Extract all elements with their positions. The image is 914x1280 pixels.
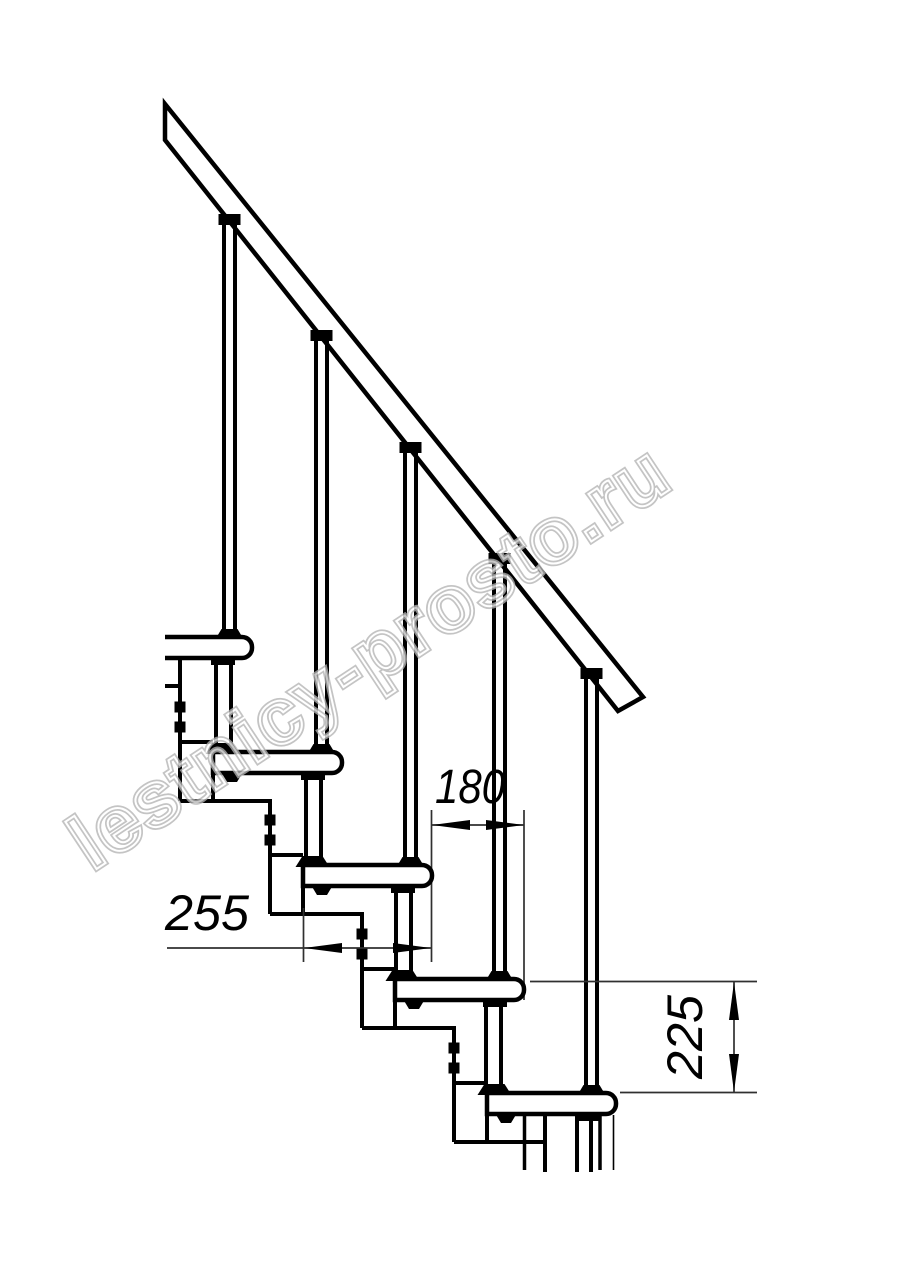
baluster-collar-1 [219,214,241,225]
tube-cap-1 [211,657,235,665]
bolt-2b [265,835,276,846]
bolt-4b [449,1063,460,1074]
bolt-4a [449,1043,460,1054]
bolt-3a [357,929,368,940]
tube-cap-4 [483,999,507,1007]
dimension-label-180: 180 [435,761,505,814]
tread-4 [395,979,524,1000]
staircase-technical-drawing: 180 255 225 lestnicy-prosto.ru lestnicy-… [0,0,914,1280]
tube-cap-3 [391,885,415,893]
tube-cap-2 [301,772,325,780]
baluster-collar-3 [400,442,422,453]
bolt-2a [265,815,276,826]
tread-1 [165,637,252,658]
tread-3 [303,865,432,886]
tube-cap-5 [575,1113,599,1121]
bolt-1a [175,702,186,713]
baluster-collar-5 [581,668,603,679]
tread-5 [487,1093,616,1114]
dimension-label-255: 255 [164,885,249,941]
baluster-collar-2 [311,330,333,341]
bolt-3b [357,949,368,960]
dimension-label-225: 225 [657,995,713,1080]
drawing-canvas: 180 255 225 lestnicy-prosto.ru lestnicy-… [0,0,914,1280]
